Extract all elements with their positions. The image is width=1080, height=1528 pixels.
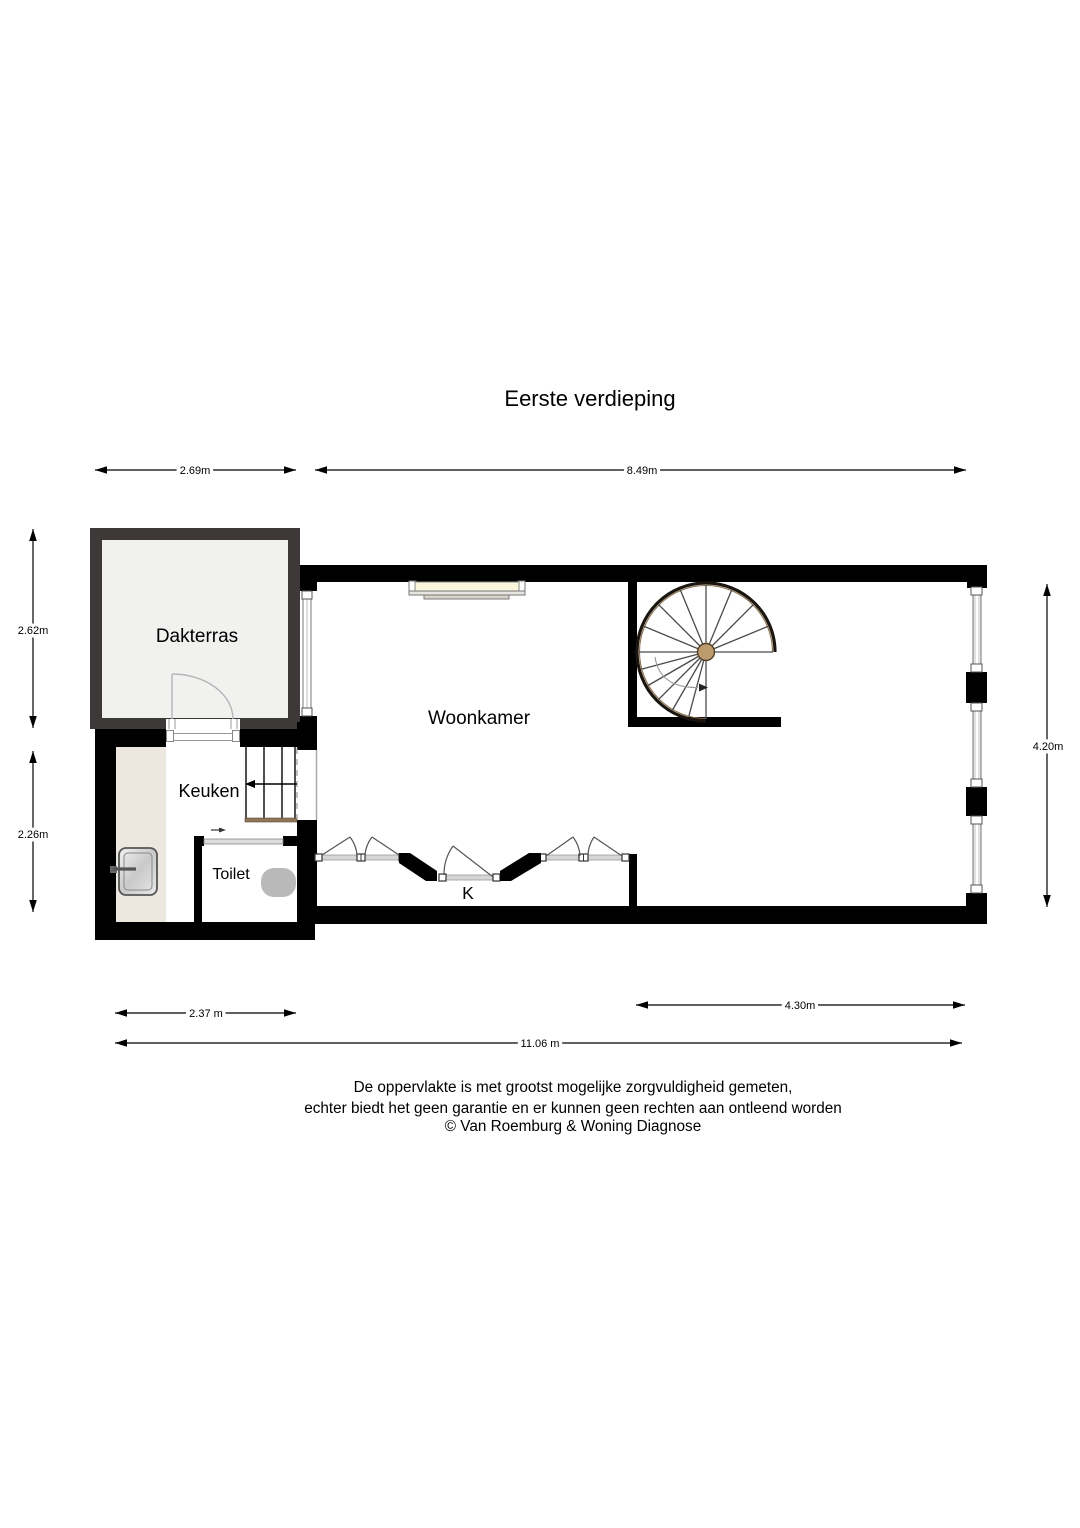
svg-text:Keuken: Keuken (178, 781, 239, 801)
svg-text:Eerste verdieping: Eerste verdieping (504, 386, 675, 411)
svg-text:© Van Roemburg & Woning Diagno: © Van Roemburg & Woning Diagnose (445, 1118, 701, 1135)
svg-text:echter biedt het geen garantie: echter biedt het geen garantie en er kun… (304, 1100, 842, 1117)
svg-text:Toilet: Toilet (212, 866, 250, 883)
svg-text:De oppervlakte is met grootst: De oppervlakte is met grootst mogelijke … (354, 1079, 793, 1096)
svg-text:K: K (462, 883, 474, 903)
svg-text:Woonkamer: Woonkamer (428, 708, 531, 729)
svg-text:2.69m: 2.69m (180, 465, 211, 477)
svg-text:2.62m: 2.62m (18, 625, 49, 637)
svg-text:2.37 m: 2.37 m (189, 1008, 223, 1020)
svg-text:2.26m: 2.26m (18, 829, 49, 841)
svg-text:Dakterras: Dakterras (156, 626, 238, 647)
svg-text:11.06 m: 11.06 m (521, 1038, 560, 1050)
svg-text:4.30m: 4.30m (785, 1000, 816, 1012)
svg-text:4.20m: 4.20m (1033, 741, 1064, 753)
svg-text:8.49m: 8.49m (627, 465, 658, 477)
